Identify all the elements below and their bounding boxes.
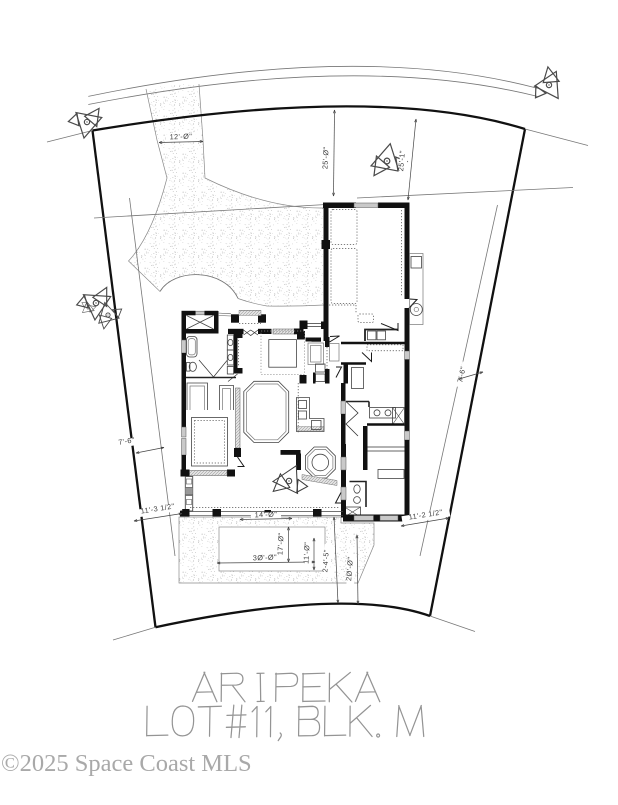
svg-text:14'-Ø": 14'-Ø" bbox=[254, 510, 277, 520]
svg-text:©2025 Space Coast MLS: ©2025 Space Coast MLS bbox=[1, 750, 252, 777]
svg-text:11'-Ø": 11'-Ø" bbox=[301, 542, 311, 565]
svg-text:17'-Ø": 17'-Ø" bbox=[275, 532, 285, 555]
svg-text:2Ø'-Ø": 2Ø'-Ø" bbox=[344, 556, 355, 581]
svg-text:25'-Ø": 25'-Ø" bbox=[320, 146, 330, 169]
svg-text:3Ø'-Ø": 3Ø'-Ø" bbox=[253, 553, 278, 563]
svg-text:12'-Ø": 12'-Ø" bbox=[169, 132, 192, 142]
svg-text:25'-1": 25'-1" bbox=[396, 150, 407, 172]
